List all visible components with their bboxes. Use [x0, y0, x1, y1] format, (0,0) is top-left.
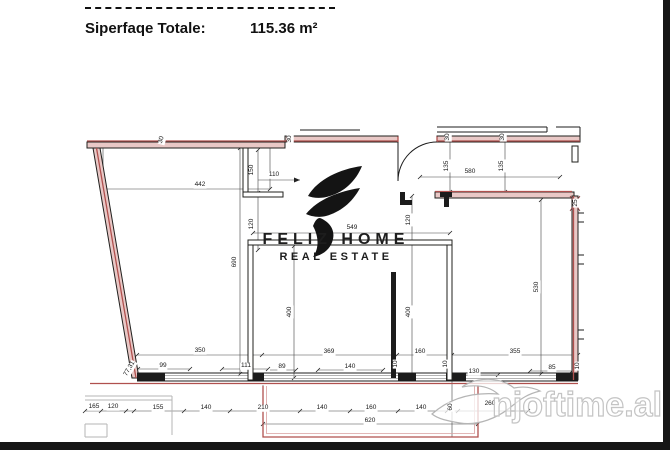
- njoftime-watermark-text: njoftime.al: [492, 386, 662, 425]
- scan-edge-bottom: [0, 442, 670, 450]
- floor-plan-drawing: [0, 0, 670, 450]
- arrow-110: [294, 178, 300, 183]
- bottom-wall: [137, 373, 578, 381]
- terrace-outline: [85, 396, 172, 437]
- floor-plan-page: Siperfaqe Totale: 115.36 m²: [0, 0, 670, 450]
- scan-edge-right: [663, 0, 670, 450]
- feliz-home-logo-tagline: REAL ESTATE: [250, 251, 422, 263]
- entry-door: [398, 142, 437, 181]
- feliz-home-logo-name: FELIZ HOME: [250, 231, 422, 249]
- parapet-lines: [300, 127, 580, 136]
